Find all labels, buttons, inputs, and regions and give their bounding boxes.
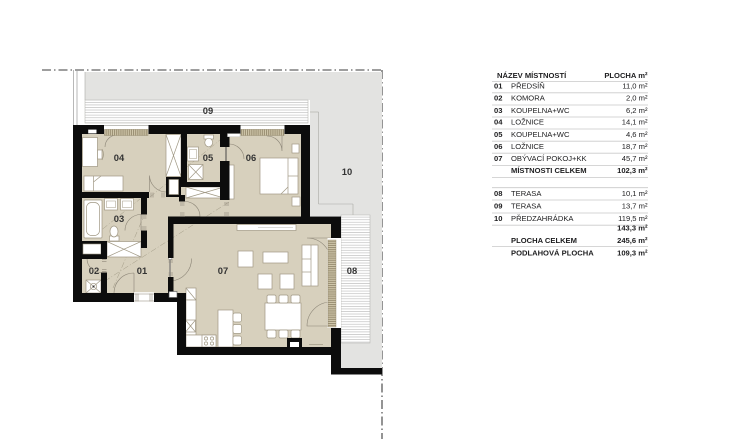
svg-text:LOŽNICE: LOŽNICE bbox=[511, 118, 544, 127]
svg-text:07: 07 bbox=[218, 265, 228, 276]
svg-text:KOUPELNA+WC: KOUPELNA+WC bbox=[511, 130, 570, 139]
svg-text:PLOCHA CELKEM: PLOCHA CELKEM bbox=[511, 236, 577, 245]
svg-text:10,1 m²: 10,1 m² bbox=[622, 189, 648, 198]
svg-text:18,7 m²: 18,7 m² bbox=[622, 142, 648, 151]
svg-text:13,7 m²: 13,7 m² bbox=[622, 201, 648, 210]
svg-text:01: 01 bbox=[494, 82, 503, 91]
svg-text:119,5 m²: 119,5 m² bbox=[618, 214, 648, 223]
svg-text:MÍSTNOSTI CELKEM: MÍSTNOSTI CELKEM bbox=[511, 166, 587, 175]
svg-text:143,3 m²: 143,3 m² bbox=[617, 224, 648, 233]
svg-text:102,3 m²: 102,3 m² bbox=[617, 166, 648, 175]
svg-text:10: 10 bbox=[342, 166, 352, 177]
svg-text:09: 09 bbox=[203, 105, 213, 116]
svg-text:01: 01 bbox=[137, 265, 147, 276]
svg-text:04: 04 bbox=[114, 152, 125, 163]
svg-text:OBÝVACÍ POKOJ+KK: OBÝVACÍ POKOJ+KK bbox=[511, 154, 587, 163]
svg-text:LOŽNICE: LOŽNICE bbox=[511, 142, 544, 151]
svg-text:08: 08 bbox=[347, 265, 357, 276]
svg-text:14,1 m²: 14,1 m² bbox=[622, 118, 648, 127]
svg-text:03: 03 bbox=[114, 213, 124, 224]
svg-text:NÁZEV MÍSTNOSTÍ: NÁZEV MÍSTNOSTÍ bbox=[497, 71, 567, 80]
svg-text:PŘEDZAHRÁDKA: PŘEDZAHRÁDKA bbox=[511, 214, 574, 223]
svg-text:2,0 m²: 2,0 m² bbox=[626, 94, 648, 103]
svg-text:10: 10 bbox=[494, 214, 502, 223]
svg-text:PODLAHOVÁ PLOCHA: PODLAHOVÁ PLOCHA bbox=[511, 248, 594, 257]
svg-text:PŘEDSÍŇ: PŘEDSÍŇ bbox=[511, 82, 545, 91]
svg-text:07: 07 bbox=[494, 154, 502, 163]
svg-text:06: 06 bbox=[246, 152, 256, 163]
svg-text:TERASA: TERASA bbox=[511, 201, 542, 210]
svg-text:PLOCHA m²: PLOCHA m² bbox=[604, 71, 648, 80]
svg-text:KOMORA: KOMORA bbox=[511, 94, 546, 103]
svg-text:05: 05 bbox=[203, 152, 213, 163]
svg-text:04: 04 bbox=[494, 118, 503, 127]
svg-text:06: 06 bbox=[494, 142, 502, 151]
svg-text:4,6 m²: 4,6 m² bbox=[626, 130, 648, 139]
svg-text:05: 05 bbox=[494, 130, 503, 139]
svg-text:245,6 m²: 245,6 m² bbox=[617, 236, 648, 245]
svg-text:02: 02 bbox=[494, 94, 502, 103]
svg-text:45,7 m²: 45,7 m² bbox=[622, 154, 648, 163]
svg-text:08: 08 bbox=[494, 189, 502, 198]
svg-text:09: 09 bbox=[494, 201, 502, 210]
svg-text:03: 03 bbox=[494, 106, 502, 115]
svg-text:11,0 m²: 11,0 m² bbox=[622, 82, 648, 91]
svg-text:TERASA: TERASA bbox=[511, 189, 542, 198]
svg-text:109,3 m²: 109,3 m² bbox=[617, 248, 648, 257]
svg-text:KOUPELNA+WC: KOUPELNA+WC bbox=[511, 106, 570, 115]
svg-text:6,2 m²: 6,2 m² bbox=[626, 106, 648, 115]
